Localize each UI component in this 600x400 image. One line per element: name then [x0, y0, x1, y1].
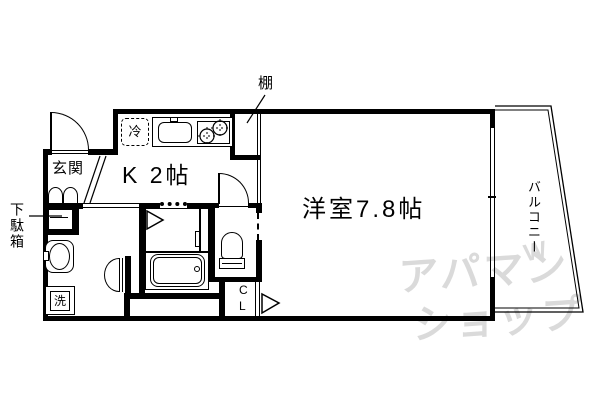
wall	[124, 293, 130, 321]
closet-label-l: L	[239, 300, 246, 312]
shoe-cabinet-label: 下駄箱	[10, 202, 24, 250]
closet-door-triangle	[262, 294, 279, 313]
toilet-bowl	[221, 232, 243, 259]
step-line	[84, 156, 100, 203]
vanity-basin	[49, 243, 70, 270]
cabinet-door-arc	[48, 187, 63, 204]
opening-line	[83, 207, 140, 208]
sink-faucet	[170, 117, 178, 122]
bath-counter	[195, 231, 200, 247]
wall	[256, 240, 262, 282]
partition-line	[257, 114, 258, 155]
dotted-wall	[160, 202, 187, 206]
dashed-wall	[257, 213, 259, 240]
kitchen-sink	[158, 122, 192, 143]
shoe-cabinet-shelf-line	[50, 217, 68, 218]
partition-line	[260, 160, 261, 203]
closet-label-c: C	[239, 284, 248, 296]
double-door-arc	[104, 275, 119, 292]
bathtub-inner	[153, 257, 202, 284]
wall	[113, 109, 495, 114]
wall	[256, 203, 262, 213]
shoe-cabinet-box	[48, 209, 73, 230]
toilet-tank-line	[222, 263, 242, 264]
double-door-panel	[119, 258, 120, 292]
wall	[113, 109, 118, 155]
window-mullion	[488, 196, 496, 198]
kitchen-label: K 2帖	[122, 164, 192, 187]
threshold-line	[51, 153, 88, 154]
stove	[197, 121, 230, 144]
cabinet-door-arc	[63, 187, 78, 204]
threshold-line	[51, 150, 88, 151]
double-door-panel	[122, 258, 123, 292]
wall	[490, 109, 495, 128]
double-door-arc	[104, 258, 119, 275]
wall	[490, 277, 495, 321]
refrigerator-label: 冷	[128, 124, 141, 139]
partition-line	[257, 160, 258, 203]
door-sill-line	[219, 206, 248, 207]
window-line	[490, 128, 491, 277]
partition-line	[260, 114, 261, 155]
entrance-label: 玄関	[52, 161, 84, 176]
wall	[43, 316, 495, 321]
closet-face-line	[259, 282, 260, 316]
main-room-label: 洋室7.8帖	[302, 198, 425, 222]
washing-machine-label: 洗	[54, 295, 66, 307]
window-line	[494, 128, 495, 277]
vanity-faucet	[43, 251, 49, 261]
wall	[124, 293, 220, 299]
closet-face-line	[255, 282, 256, 316]
wall	[125, 256, 131, 293]
shelf-label: 棚	[258, 76, 273, 91]
floor-plan: アパマン ショップ W	[0, 0, 600, 400]
entry-door-arc	[51, 112, 89, 150]
wall	[219, 277, 225, 321]
wall	[209, 203, 215, 282]
opening-line	[83, 203, 140, 204]
refrigerator: 冷	[121, 118, 149, 146]
step-line	[90, 156, 106, 203]
wc-door-arc	[219, 173, 249, 203]
balcony-label: バルコニー	[527, 180, 540, 255]
